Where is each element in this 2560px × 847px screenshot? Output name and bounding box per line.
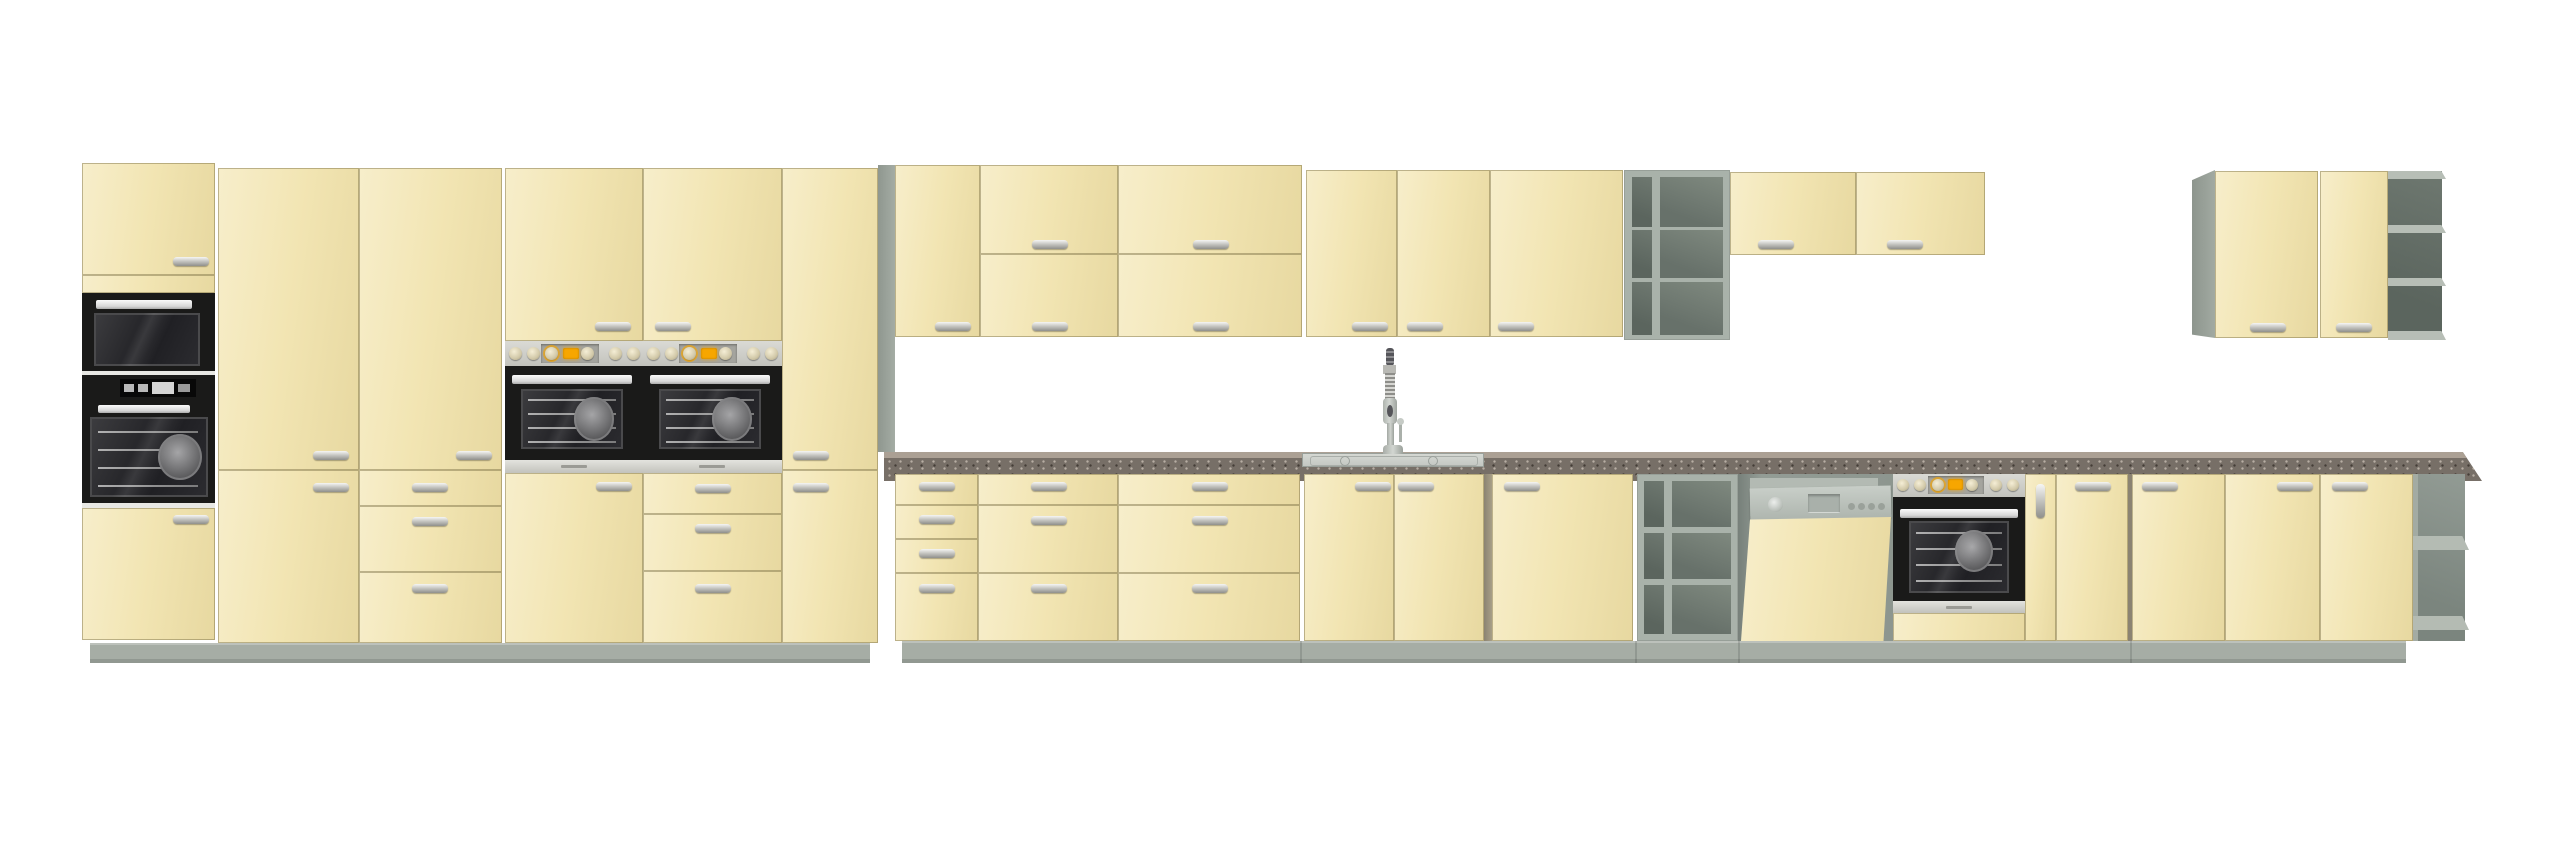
plinth-seam xyxy=(2130,641,2132,663)
base1-drawer-2-handle xyxy=(919,515,955,524)
ovencol1-brand-mark xyxy=(561,465,587,468)
cabinet-gap-shadow xyxy=(1484,474,1492,641)
base-end-shelf-interior xyxy=(2413,474,2465,641)
faucet-base xyxy=(1383,445,1403,454)
tall2-bottom-door xyxy=(218,470,359,643)
ovencol2-knob xyxy=(719,347,732,360)
base3-drawer-1-handle xyxy=(1192,482,1228,491)
baseoven-knob xyxy=(2007,479,2019,491)
tall3-drawer-3 xyxy=(359,572,502,643)
base-door-4 xyxy=(2320,474,2413,641)
base3-drawer-3-handle xyxy=(1192,584,1228,593)
corner-unit-shelf-board xyxy=(2388,331,2446,340)
wall3-flap-bottom-handle xyxy=(1193,322,1229,331)
tall2-top-door xyxy=(218,168,359,470)
ovencol1-knob-lit xyxy=(545,347,558,360)
ovencol1-knob xyxy=(509,347,522,360)
sink-cabinet-door-left-handle xyxy=(1355,482,1391,491)
dishwasher-knob xyxy=(1768,497,1783,512)
wall6-flap-door-handle xyxy=(1758,240,1794,249)
base-narrow-door-handle xyxy=(2036,484,2045,518)
oven-left-display-c xyxy=(152,382,174,394)
corner-unit-door-left xyxy=(2215,171,2318,338)
tall-side-panel xyxy=(878,165,895,452)
baseoven-knob xyxy=(1990,479,2002,491)
base-shelf-cell xyxy=(1672,481,1731,527)
base-door-1 xyxy=(2056,474,2128,641)
tall2-bottom-door-handle xyxy=(313,483,349,492)
sink-cabinet-door-left xyxy=(1304,474,1394,641)
ovencol2-drawer-2-handle xyxy=(695,524,731,533)
oven-left-display-d xyxy=(178,384,190,392)
plinth-seam xyxy=(1738,641,1740,663)
base1-drawer-4-handle xyxy=(919,584,955,593)
faucet-lever xyxy=(1399,422,1402,442)
ovencol2-top-door-handle xyxy=(655,322,691,331)
wall-shelf-cell xyxy=(1632,177,1652,227)
base-door-3-handle xyxy=(2277,482,2313,491)
tall3-top-door-handle xyxy=(456,451,492,460)
base5-door-handle xyxy=(1504,482,1540,491)
oven-left-display-a xyxy=(124,384,134,392)
dishwasher-front-panel xyxy=(1741,517,1891,641)
ovencol2-handle xyxy=(650,375,770,384)
dishwasher-button xyxy=(1848,503,1855,510)
wall-shelf-cell xyxy=(1660,230,1723,278)
base5-door xyxy=(1492,474,1633,641)
wall-shelf-cell xyxy=(1632,230,1652,278)
corner-unit-door-right xyxy=(2320,171,2388,338)
dishwasher-button xyxy=(1858,503,1865,510)
tall1-bottom-door xyxy=(82,508,215,640)
base-end-shelf-board xyxy=(2413,536,2469,550)
tall3-drawer-2-handle xyxy=(412,517,448,526)
baseoven-brand-mark xyxy=(1946,606,1972,609)
tall3-drawer-3-handle xyxy=(412,584,448,593)
wall1-door-handle xyxy=(935,322,971,331)
oven-left-display-b xyxy=(138,384,148,392)
microwave-glare xyxy=(94,313,200,366)
tall4-bottom-door xyxy=(782,470,878,643)
base-shelf-cell xyxy=(1672,533,1731,579)
plinth-seam xyxy=(1635,641,1637,663)
wall4-door-right-handle xyxy=(1407,322,1443,331)
base-shelf-cell xyxy=(1644,585,1664,634)
corner-unit-door-right-handle xyxy=(2336,323,2372,332)
ovencol1-top-door-handle xyxy=(595,322,631,331)
baseoven-knob-lit xyxy=(1932,479,1944,491)
tall1-top-door-handle xyxy=(173,257,209,266)
ovencol1-display xyxy=(563,348,579,359)
base3-drawer-2-handle xyxy=(1192,516,1228,525)
ovencol2-display xyxy=(701,348,717,359)
base-shelf-cell xyxy=(1644,533,1664,579)
oven-left-glare xyxy=(90,417,208,497)
baseoven-bottom-panel xyxy=(1893,613,2025,641)
ovencol1-handle xyxy=(512,375,632,384)
base2-drawer-2-handle xyxy=(1031,516,1067,525)
ovencol2-top-door xyxy=(643,168,782,341)
baseoven-glare xyxy=(1909,521,2009,593)
base2-drawer-3-handle xyxy=(1031,584,1067,593)
tall-section-plinth xyxy=(90,643,870,663)
plinth-seam xyxy=(1300,641,1302,663)
sink-cabinet-door-right-handle xyxy=(1398,482,1434,491)
faucet-spray-head xyxy=(1386,348,1394,366)
ovencol2-knob xyxy=(647,347,660,360)
base-end-shelf-board xyxy=(2413,616,2469,630)
ovencol2-drawer-2 xyxy=(643,514,782,571)
corner-unit-shelf-board xyxy=(2388,278,2446,286)
baseoven-display xyxy=(1948,479,1963,490)
faucet-spring-coil xyxy=(1385,373,1395,399)
ovencol1-knob xyxy=(627,347,640,360)
ovencol2-knob-lit xyxy=(683,347,696,360)
faucet-body-port xyxy=(1387,405,1393,417)
faucet-riser-pipe xyxy=(1387,423,1394,447)
base2-drawer-1-handle xyxy=(1031,482,1067,491)
wall2-flap-top-handle xyxy=(1032,240,1068,249)
tall3-top-door xyxy=(359,168,502,470)
wall4-door-left xyxy=(1306,170,1397,337)
base1-drawer-3-handle xyxy=(919,549,955,558)
baseoven-handle xyxy=(1900,509,2018,518)
sink-drain-left xyxy=(1340,456,1350,466)
wall5-door-handle xyxy=(1498,322,1534,331)
tall2-top-door-handle xyxy=(313,451,349,460)
tall4-bottom-door-handle xyxy=(793,483,829,492)
faucet-lever-knob xyxy=(1397,418,1404,425)
dishwasher-button xyxy=(1878,503,1885,510)
base1-drawer-1-handle xyxy=(919,482,955,491)
wall4-door-left-handle xyxy=(1352,322,1388,331)
oven-left-handle xyxy=(98,405,190,413)
wall4-door-right xyxy=(1397,170,1490,337)
wall-shelf-cell xyxy=(1660,282,1723,335)
base-door-2 xyxy=(2132,474,2225,641)
dishwasher-handle-recess xyxy=(1808,494,1840,513)
base-shelf-cell xyxy=(1644,481,1664,527)
microwave-handle xyxy=(96,300,192,309)
corner-unit-open-interior xyxy=(2388,171,2442,338)
base-door-2-handle xyxy=(2142,482,2178,491)
ovencol2-drawer-3 xyxy=(643,571,782,643)
corner-unit-shelf-board xyxy=(2388,225,2446,233)
baseoven-knob xyxy=(1914,479,1926,491)
sink-cabinet-door-right xyxy=(1394,474,1484,641)
dishwasher-button xyxy=(1868,503,1875,510)
base-plinth xyxy=(902,641,2406,663)
tall3-drawer-1-handle xyxy=(412,483,448,492)
tall4-top-door-handle xyxy=(793,451,829,460)
ovencol1-knob xyxy=(527,347,540,360)
base-door-4-handle xyxy=(2332,482,2368,491)
tall4-top-door xyxy=(782,168,878,470)
sink-drainer-outline xyxy=(1310,456,1478,466)
baseoven-knob xyxy=(1897,479,1909,491)
corner-unit-door-left-handle xyxy=(2250,323,2286,332)
base-end-shelf-left-edge xyxy=(2413,474,2418,641)
ovencol2-knob xyxy=(765,347,778,360)
wall-shelf-cell xyxy=(1660,177,1723,227)
ovencol1-knob xyxy=(609,347,622,360)
tall3-drawer-2 xyxy=(359,506,502,572)
ovencol2-drawer-1-handle xyxy=(695,484,731,493)
ovencol1-top-door xyxy=(505,168,643,341)
base-door-1-handle xyxy=(2075,482,2111,491)
wall7-flap-door-handle xyxy=(1887,240,1923,249)
ovencol1-glare xyxy=(521,389,623,449)
ovencol2-glare xyxy=(659,389,761,449)
ovencol1-knob xyxy=(581,347,594,360)
kitchen-set-render xyxy=(0,0,2560,847)
base-door-3 xyxy=(2225,474,2320,641)
tall1-filler-panel xyxy=(82,275,215,293)
ovencol2-drawer-3-handle xyxy=(695,584,731,593)
corner-unit-side-panel xyxy=(2192,170,2215,338)
ovencol2-knob xyxy=(665,347,678,360)
baseoven-knob xyxy=(1966,479,1978,491)
sink-drain-right xyxy=(1428,456,1438,466)
corner-unit-shelf-board xyxy=(2388,171,2446,179)
wall5-door xyxy=(1490,170,1623,337)
wall1-door xyxy=(895,165,980,337)
ovencol2-drawer-1 xyxy=(643,473,782,514)
ovencol2-brand-mark xyxy=(699,465,725,468)
ovencol1-bottom-door-handle xyxy=(596,482,632,491)
wall-shelf-cell xyxy=(1632,282,1652,335)
tall1-bottom-door-handle xyxy=(173,515,209,524)
ovencol2-knob xyxy=(747,347,760,360)
wall2-flap-bottom-handle xyxy=(1032,322,1068,331)
ovencol1-bottom-door xyxy=(505,473,643,643)
base-shelf-cell xyxy=(1672,585,1731,634)
wall3-flap-top-handle xyxy=(1193,240,1229,249)
